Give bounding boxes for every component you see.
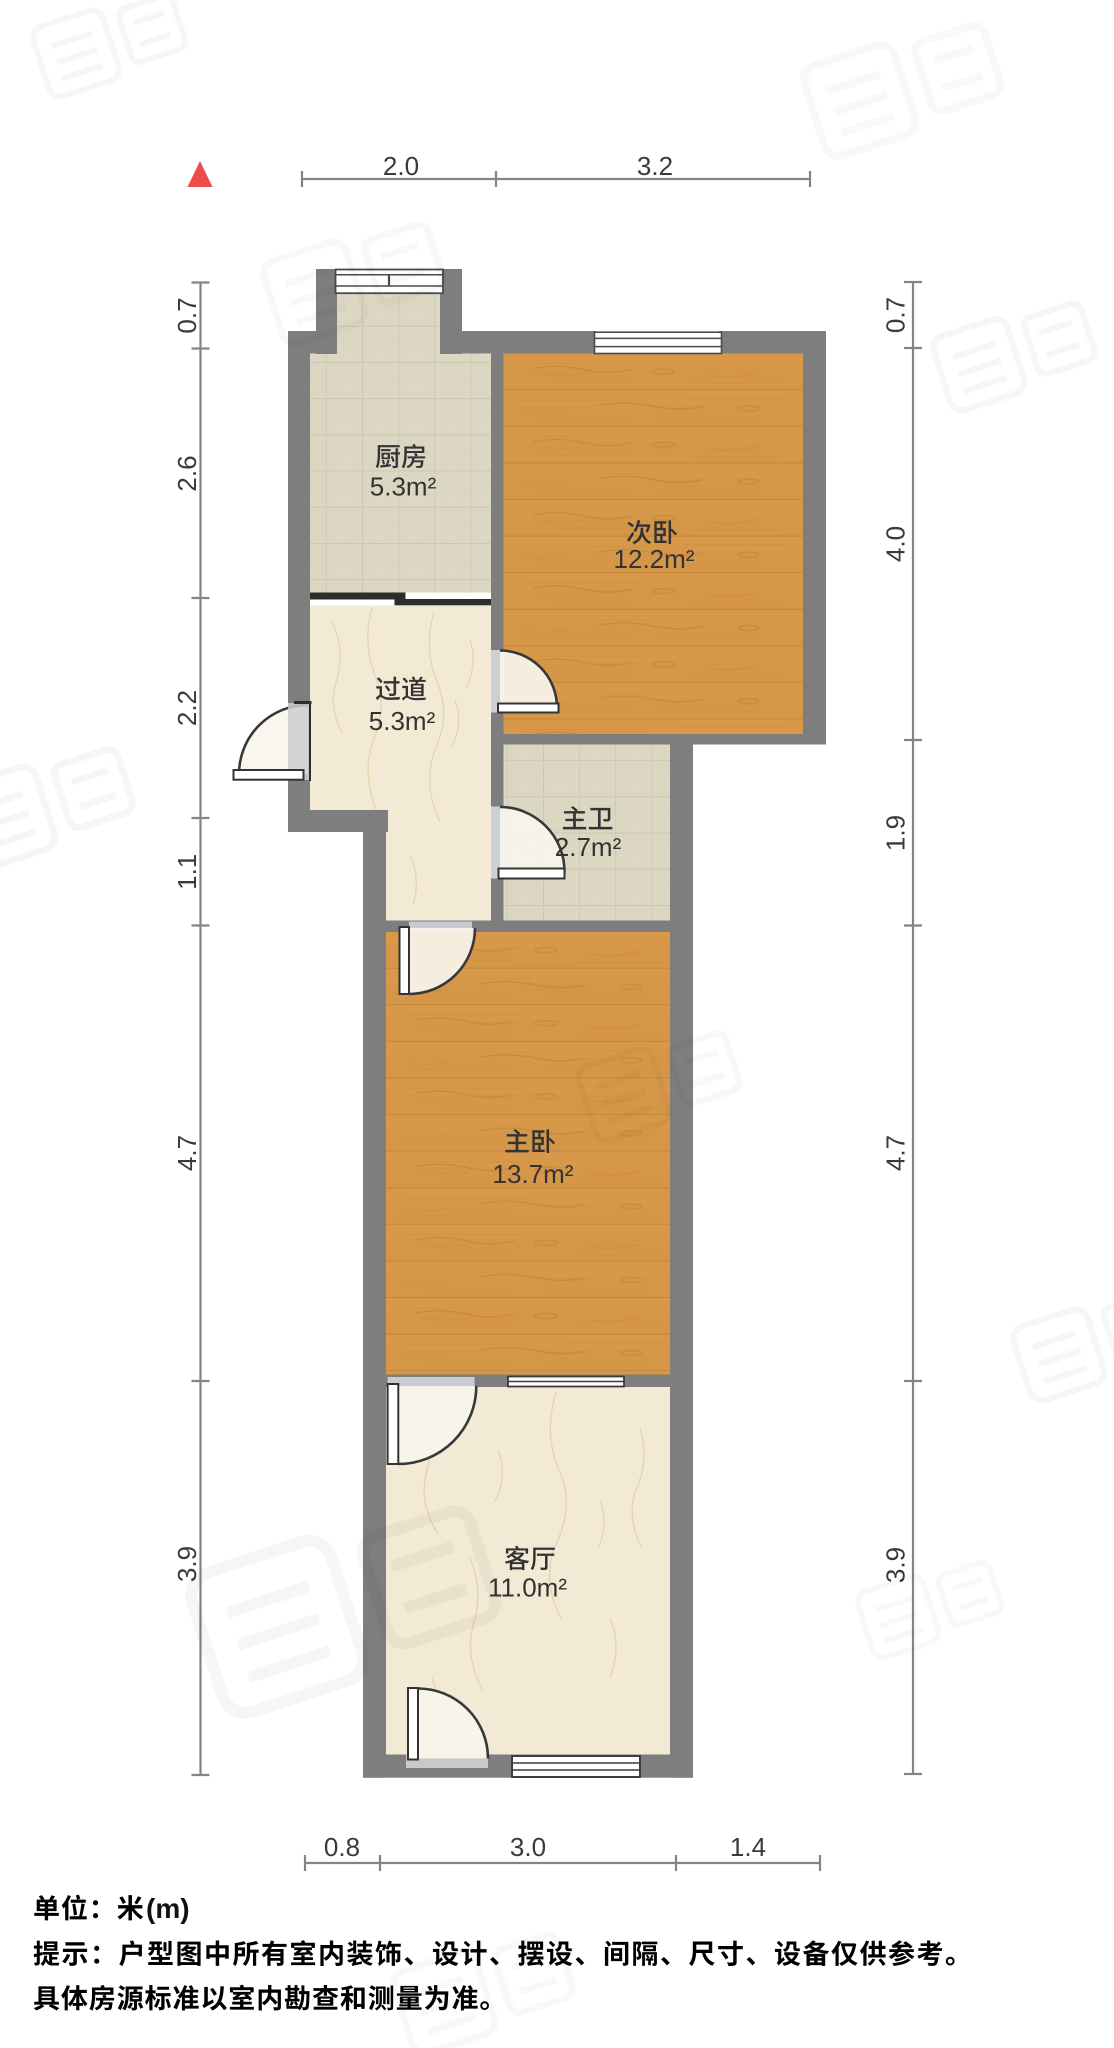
svg-text:1.9: 1.9	[881, 815, 911, 851]
svg-text:5.3m²: 5.3m²	[370, 471, 437, 501]
svg-text:0.7: 0.7	[881, 297, 911, 333]
svg-text:2.6: 2.6	[172, 455, 202, 491]
svg-text:0.8: 0.8	[324, 1832, 360, 1862]
svg-text:4.7: 4.7	[172, 1135, 202, 1171]
svg-text:1.1: 1.1	[172, 854, 202, 890]
svg-text:2.7m²: 2.7m²	[555, 832, 622, 862]
svg-text:4.0: 4.0	[881, 526, 911, 562]
svg-text:5.3m²: 5.3m²	[369, 706, 436, 736]
svg-text:3.0: 3.0	[510, 1832, 546, 1862]
svg-text:4.7: 4.7	[881, 1135, 911, 1171]
svg-text:(m): (m)	[146, 1893, 190, 1924]
svg-text:2.0: 2.0	[383, 151, 419, 181]
svg-text:12.2m²: 12.2m²	[614, 544, 695, 574]
svg-text:2.2: 2.2	[172, 690, 202, 726]
svg-text:13.7m²: 13.7m²	[493, 1159, 574, 1189]
svg-text:0.7: 0.7	[172, 297, 202, 333]
svg-text:1.4: 1.4	[730, 1832, 766, 1862]
svg-text:3.2: 3.2	[637, 151, 673, 181]
